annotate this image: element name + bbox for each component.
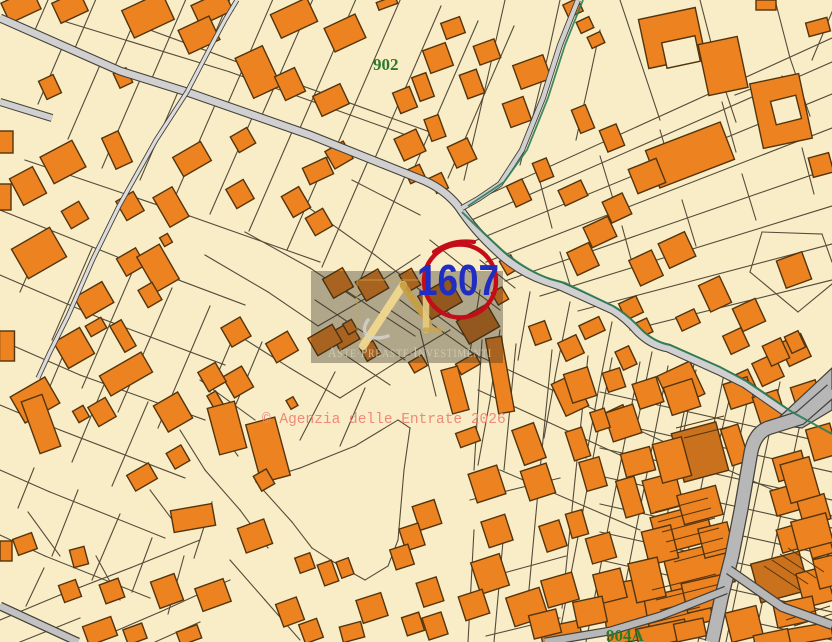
svg-text:902: 902 (373, 55, 399, 74)
svg-text:ASTE·PREASTE·INVESTIMENTI: ASTE·PREASTE·INVESTIMENTI (328, 345, 492, 361)
svg-text:© Agenzia delle Entrate 2026: © Agenzia delle Entrate 2026 (262, 412, 506, 428)
svg-text:1607: 1607 (417, 256, 499, 305)
svg-text:904A: 904A (606, 626, 645, 642)
